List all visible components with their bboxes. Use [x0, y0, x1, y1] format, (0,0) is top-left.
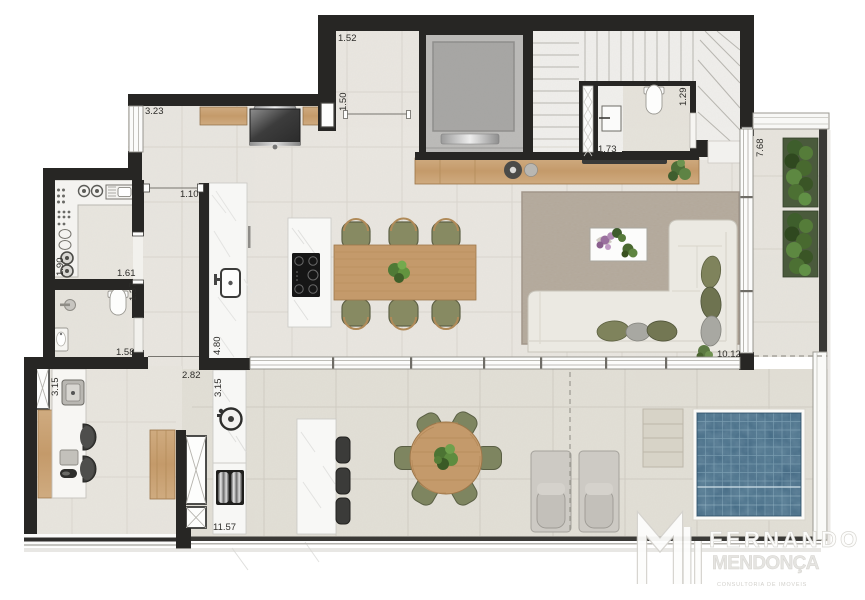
svg-text:1.10: 1.10: [180, 189, 199, 200]
svg-text:2.82: 2.82: [182, 370, 201, 381]
svg-text:MENDONÇA: MENDONÇA: [712, 553, 820, 574]
svg-text:1.58: 1.58: [116, 347, 135, 358]
svg-text:1.73: 1.73: [598, 144, 617, 155]
svg-text:4.80: 4.80: [212, 337, 223, 356]
svg-text:1.90: 1.90: [55, 258, 66, 277]
svg-text:3.23: 3.23: [145, 106, 164, 117]
svg-text:1.37: 1.37: [128, 283, 139, 302]
svg-text:10.12: 10.12: [717, 349, 741, 360]
svg-text:3.15: 3.15: [213, 379, 224, 398]
svg-text:1.50: 1.50: [338, 93, 349, 112]
svg-text:1.29: 1.29: [678, 88, 689, 107]
svg-text:11.57: 11.57: [213, 522, 236, 533]
svg-text:CONSULTORIA DE IMOVEIS: CONSULTORIA DE IMOVEIS: [717, 582, 807, 588]
svg-text:3.15: 3.15: [50, 378, 61, 397]
svg-text:1.52: 1.52: [338, 33, 357, 44]
svg-text:FERNANDO: FERNANDO: [709, 527, 859, 552]
svg-text:1.61: 1.61: [117, 268, 136, 279]
svg-text:7.68: 7.68: [755, 139, 766, 158]
